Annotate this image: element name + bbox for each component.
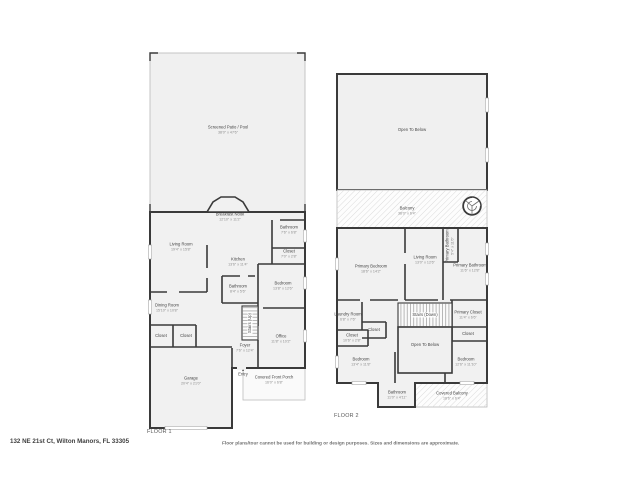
floor2-plan [330, 68, 498, 423]
front-porch-area [243, 368, 305, 400]
stairs-up-treads [243, 307, 257, 339]
floorplan-page: { "meta": { "address": "132 NE 21st Ct, … [0, 0, 640, 480]
open-to-below-center [398, 327, 452, 373]
floor1-title: FLOOR 1 [147, 428, 172, 434]
spiral-staircase-icon [463, 197, 481, 215]
covered-balcony-hatch [415, 383, 487, 407]
entry-door-gap [237, 366, 246, 370]
stairs-down-treads [399, 304, 451, 326]
floor2-title: FLOOR 2 [334, 412, 359, 418]
disclaimer-text: Floor plans/tour cannot be used for buil… [222, 440, 459, 446]
floor1-plan [145, 48, 313, 438]
screened-patio-area [150, 53, 305, 212]
property-address: 132 NE 21st Ct, Wilton Manors, FL 33305 [10, 438, 129, 445]
open-to-below-area [337, 74, 487, 190]
